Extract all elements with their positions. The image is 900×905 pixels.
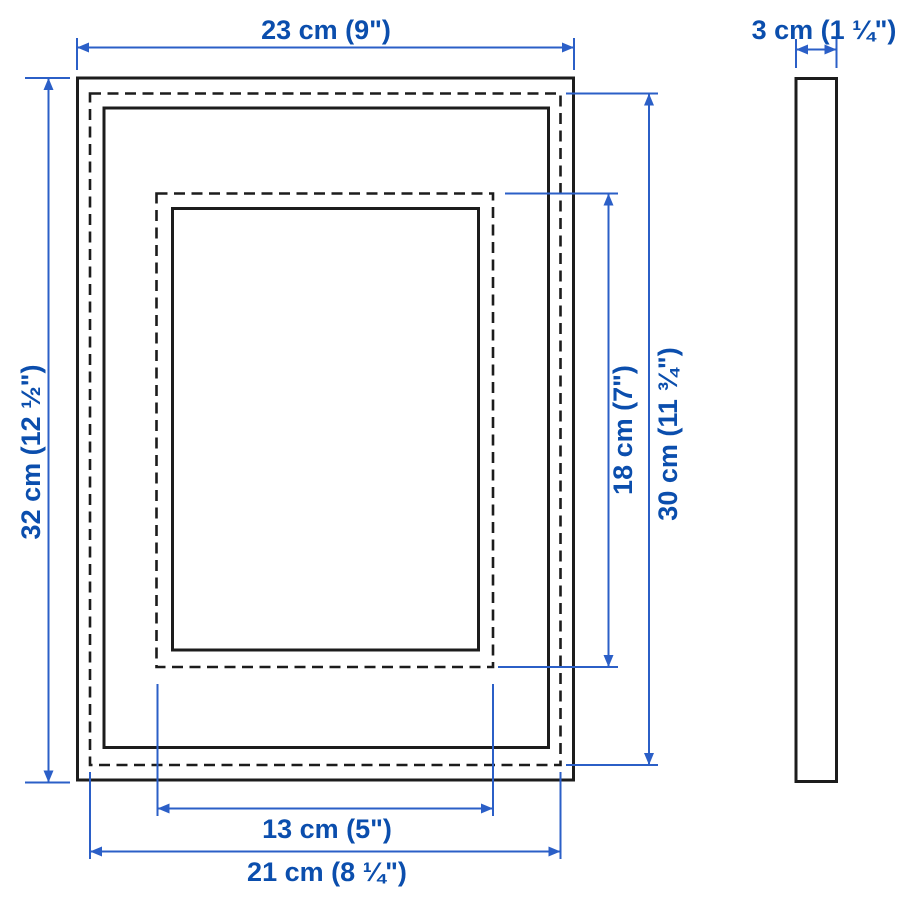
arrowhead-left-icon (796, 45, 808, 55)
arrowhead-right-icon (481, 804, 493, 814)
picture-width-label: 13 cm (5") (262, 814, 392, 844)
dim-frame-height: 32 cm (12 ½") (16, 78, 70, 783)
arrowhead-up-icon (44, 78, 54, 90)
arrowhead-up-icon (604, 194, 614, 206)
dim-frame-width: 23 cm (9") (77, 15, 574, 70)
frame-dimension-diagram: 23 cm (9") 3 cm (1 ¼") 32 cm (12 ½") 30 … (0, 0, 900, 900)
front-view (78, 78, 574, 780)
frame-width-label: 23 cm (9") (261, 15, 391, 45)
frame-depth-label: 3 cm (1 ¼") (752, 15, 897, 45)
dim-frame-depth: 3 cm (1 ¼") (752, 15, 897, 68)
arrowhead-left-icon (90, 847, 102, 857)
side-view (796, 79, 837, 782)
frame-inner-edge (104, 108, 549, 748)
picture-area-dashed-outline (157, 194, 494, 668)
side-profile-outline (796, 79, 837, 782)
arrowhead-right-icon (825, 45, 837, 55)
back-width-label: 21 cm (8 ¼") (247, 857, 407, 887)
arrowhead-down-icon (44, 771, 54, 783)
arrowhead-down-icon (644, 753, 654, 765)
arrowhead-up-icon (644, 94, 654, 106)
frame-outer-edge (78, 78, 574, 780)
frame-height-label: 32 cm (12 ½") (16, 365, 46, 540)
arrowhead-right-icon (562, 43, 574, 53)
arrowhead-left-icon (77, 43, 89, 53)
dim-picture-height: 18 cm (7") (498, 194, 638, 668)
picture-opening-edge (173, 209, 479, 651)
arrowhead-right-icon (549, 847, 561, 857)
diagram-svg: 23 cm (9") 3 cm (1 ¼") 32 cm (12 ½") 30 … (0, 0, 900, 900)
picture-height-label: 18 cm (7") (608, 365, 638, 495)
back-height-label: 30 cm (11 ¾") (653, 347, 683, 520)
arrowhead-down-icon (604, 655, 614, 667)
arrowhead-left-icon (158, 804, 170, 814)
